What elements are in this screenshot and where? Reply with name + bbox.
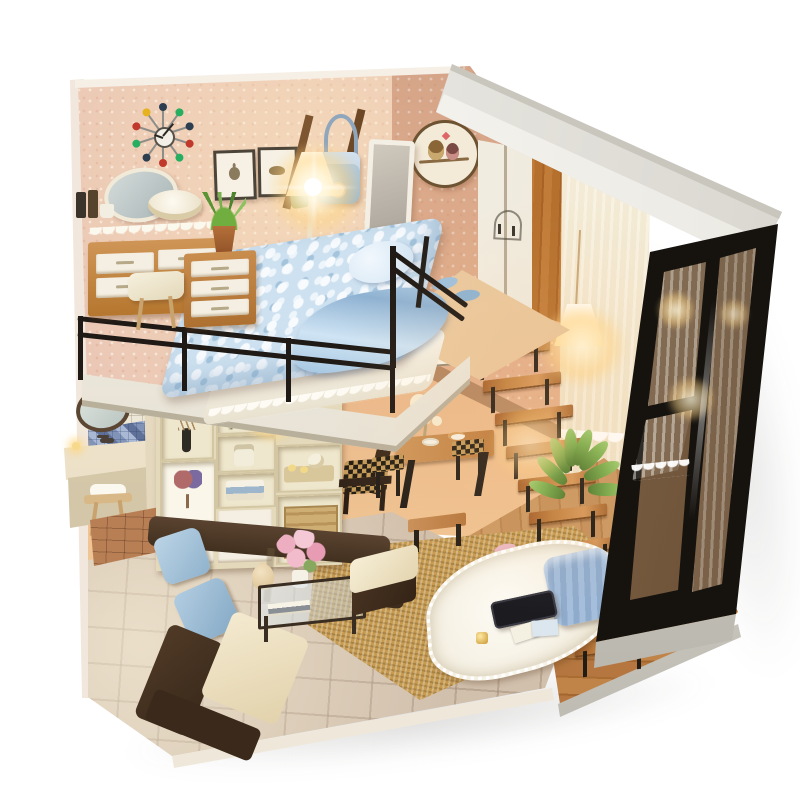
mug-white xyxy=(100,204,114,218)
bottle-dark-2 xyxy=(88,190,98,218)
stool-cushion xyxy=(128,271,184,302)
railing-post xyxy=(286,338,291,402)
stool-leg-2 xyxy=(168,296,176,328)
dresser-drawer-1 xyxy=(96,252,154,274)
plant-spikes xyxy=(202,192,246,230)
cabinet-drawer-2 xyxy=(191,278,249,297)
railing-post xyxy=(78,316,83,380)
railing-post xyxy=(182,327,187,391)
loft-stool xyxy=(128,272,188,334)
doily-cake xyxy=(148,190,202,220)
bottle-dark-1 xyxy=(76,192,86,218)
plant-pot xyxy=(210,226,238,252)
dollhouse-photo xyxy=(0,0,800,800)
stool-leg-1 xyxy=(136,298,144,330)
loft-plant xyxy=(198,192,250,256)
cosmetic-bottles xyxy=(76,190,120,226)
side-cabinet xyxy=(184,250,256,328)
cabinet-drawer-3 xyxy=(191,298,249,317)
lamp-core xyxy=(304,178,322,196)
cabinet-drawer-1 xyxy=(191,258,249,277)
